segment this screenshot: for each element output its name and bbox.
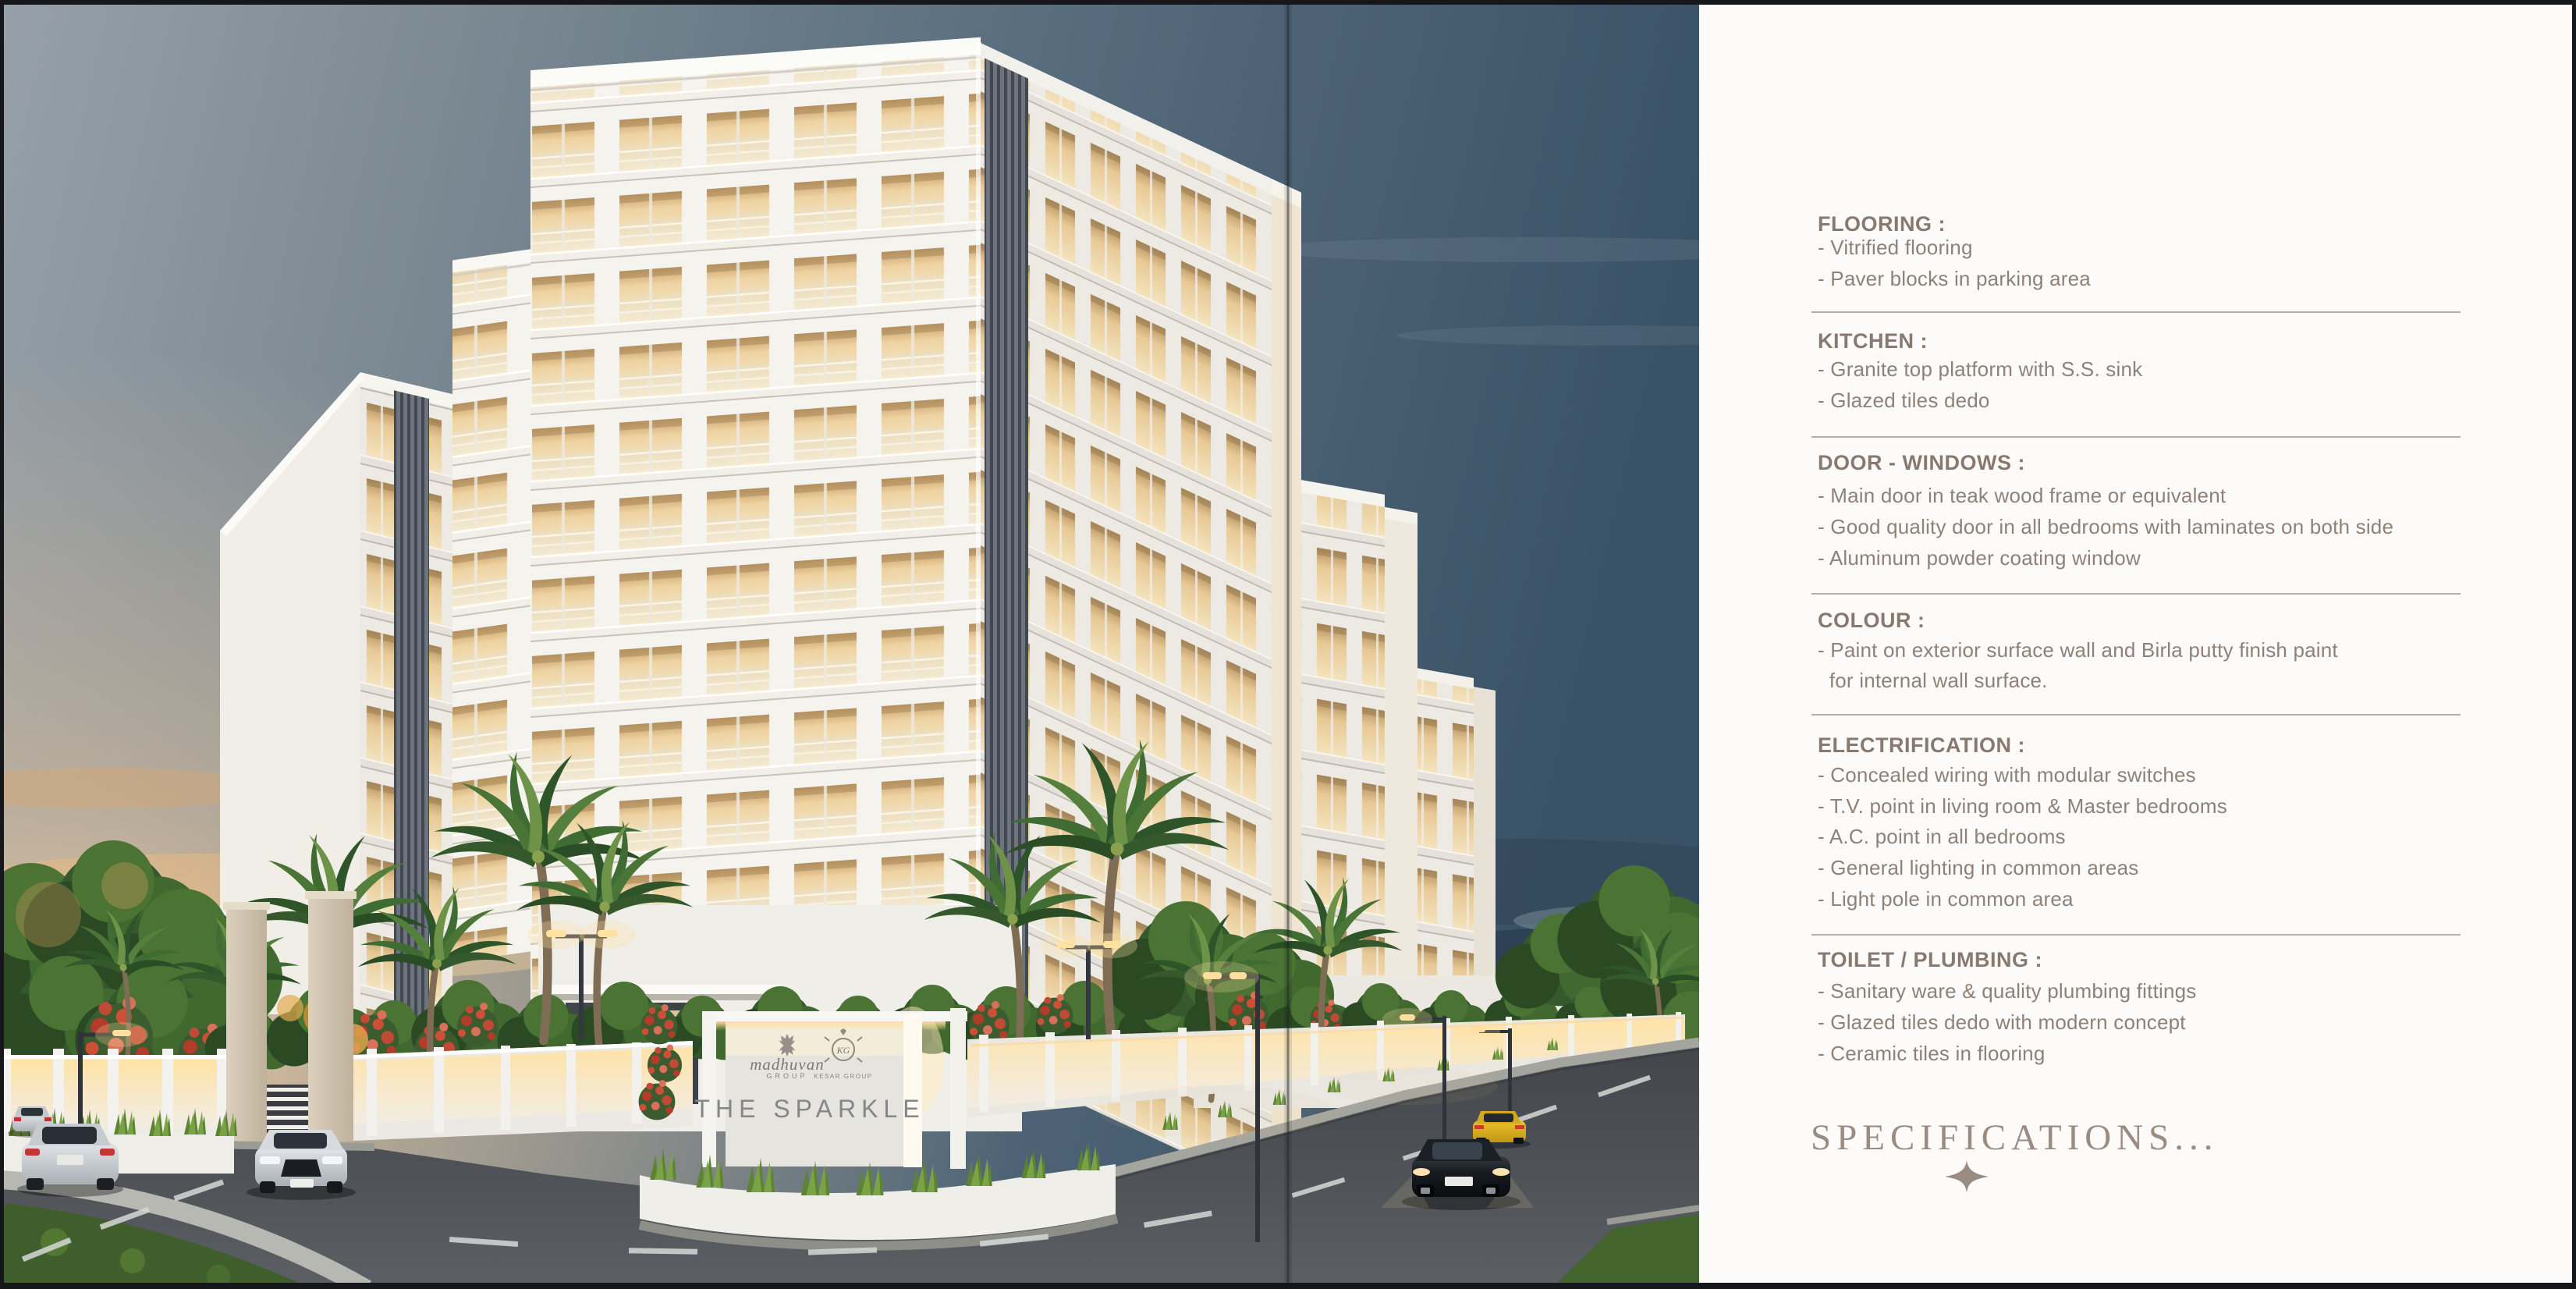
section-heading-kitchen: KITCHEN : bbox=[1818, 328, 2489, 354]
page-border bbox=[0, 0, 4, 1289]
spec-item: - Aluminum powder coating window bbox=[1818, 545, 2504, 571]
brochure-spread: madhuvan GROUP KG KESAR GROUP THE SPARKL… bbox=[0, 0, 2576, 1289]
spec-item: - Vitrified flooring bbox=[1818, 234, 2504, 261]
section-heading-electrification: ELECTRIFICATION : bbox=[1818, 732, 2489, 758]
section-divider bbox=[1811, 436, 2461, 438]
spec-item: - Sanitary ware & quality plumbing fitti… bbox=[1818, 978, 2504, 1004]
spec-item: - Glazed tiles dedo bbox=[1818, 387, 2504, 414]
page-fold-line bbox=[1284, 0, 1292, 1289]
section-divider bbox=[1811, 934, 2461, 936]
spec-item: - Concealed wiring with modular switches bbox=[1818, 762, 2504, 788]
section-divider bbox=[1811, 311, 2461, 313]
crest-monogram: KG bbox=[836, 1045, 850, 1056]
section-heading-door-windows: DOOR - WINDOWS : bbox=[1818, 449, 2489, 476]
spec-item: - Granite top platform with S.S. sink bbox=[1818, 356, 2504, 382]
page-border bbox=[2572, 0, 2576, 1289]
spec-item: - Paver blocks in parking area bbox=[1818, 265, 2504, 292]
page-title: SPECIFICATIONS... bbox=[1811, 1117, 2219, 1158]
project-name: THE SPARKLE bbox=[694, 1095, 924, 1123]
section-heading-colour: COLOUR : bbox=[1818, 607, 2489, 634]
crest-caption: KESAR GROUP bbox=[814, 1073, 872, 1080]
spec-item: - Good quality door in all bedrooms with… bbox=[1818, 513, 2504, 540]
spec-item: for internal wall surface. bbox=[1818, 667, 2504, 694]
sign-brand-sub: GROUP bbox=[766, 1072, 807, 1080]
building-render-photo: madhuvan GROUP KG KESAR GROUP THE SPARKL… bbox=[0, 0, 1699, 1289]
specifications-panel: FLOORING : - Vitrified flooring - Paver … bbox=[1699, 0, 2576, 1289]
spec-item: - Paint on exterior surface wall and Bir… bbox=[1818, 637, 2504, 663]
spec-item: - General lighting in common areas bbox=[1818, 854, 2504, 881]
spec-item: - A.C. point in all bedrooms bbox=[1818, 823, 2504, 850]
section-heading-flooring: FLOORING : bbox=[1818, 211, 2489, 237]
page-border bbox=[0, 1283, 2576, 1289]
section-divider bbox=[1811, 593, 2461, 595]
spec-item: - Light pole in common area bbox=[1818, 886, 2504, 912]
spec-item: - Main door in teak wood frame or equiva… bbox=[1818, 482, 2504, 509]
spec-item: - Glazed tiles dedo with modern concept bbox=[1818, 1009, 2504, 1035]
section-heading-toilet-plumbing: TOILET / PLUMBING : bbox=[1818, 946, 2489, 973]
sign-brand: madhuvan bbox=[750, 1055, 825, 1074]
render-scene: madhuvan GROUP KG KESAR GROUP THE SPARKL… bbox=[0, 0, 1699, 1289]
spec-item: - T.V. point in living room & Master bed… bbox=[1818, 793, 2504, 819]
sparkle-star-icon bbox=[1941, 1160, 1992, 1193]
spec-item: - Ceramic tiles in flooring bbox=[1818, 1040, 2504, 1067]
section-divider bbox=[1811, 714, 2461, 716]
page-border bbox=[0, 0, 2576, 5]
